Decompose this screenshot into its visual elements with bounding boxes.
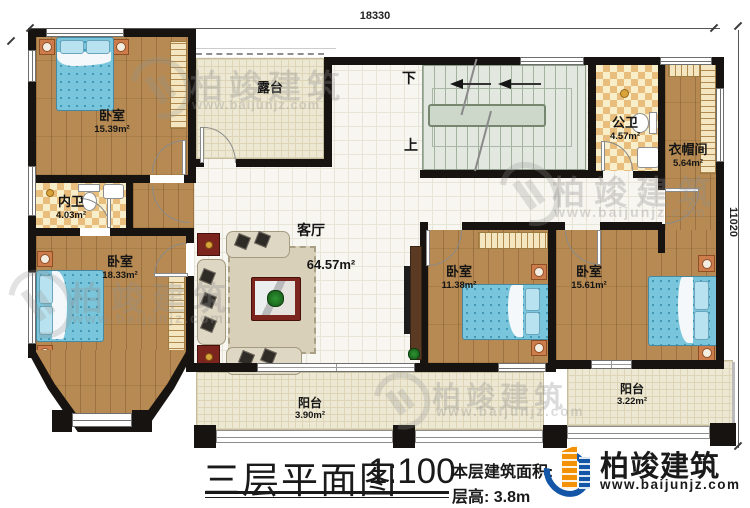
wardrobe (168, 276, 185, 362)
brand-website: www.baijunjz.com (600, 477, 741, 492)
room-name: 卧室 (558, 264, 620, 280)
nightstand (37, 251, 53, 267)
room-label-terrace: 露台 (240, 80, 300, 96)
wall (588, 171, 603, 178)
pillow (694, 311, 709, 340)
window (28, 50, 36, 82)
room-label-cloakroom: 衣帽间 5.64m² (656, 142, 720, 169)
bay-corner-pier (52, 410, 72, 432)
dimension-line-top (30, 28, 720, 29)
door-leaf (182, 140, 186, 175)
room-name: 客厅 (283, 222, 339, 239)
wall (186, 363, 257, 372)
wall (633, 171, 665, 178)
stair-up-label: 上 (404, 135, 418, 155)
logo-building-blue (579, 457, 590, 489)
room-label-living: 客厅 (283, 222, 339, 239)
dimension-tick (734, 22, 742, 30)
wall (548, 230, 556, 363)
end-table (197, 233, 220, 256)
room-label-bedroom-bm: 卧室 11.38m² (428, 264, 490, 291)
wall (28, 228, 80, 236)
room-label-bedroom-tl: 卧室 15.39m² (72, 108, 152, 135)
tv (404, 266, 410, 334)
door-leaf (200, 127, 204, 163)
wall (556, 360, 591, 369)
room-name: 卧室 (72, 108, 152, 124)
nightstand (698, 344, 715, 361)
tv-cabinet (410, 246, 422, 360)
terrace-outer-line (190, 48, 336, 49)
sheet-scale: 1:100 (368, 452, 456, 492)
room-area: 4.03m² (41, 210, 101, 221)
toilet-tank (78, 184, 100, 192)
pillow (39, 306, 53, 335)
stair-down-label: 下 (402, 68, 416, 88)
wardrobe (478, 232, 548, 249)
logo-building-orange (562, 445, 577, 489)
wall (658, 224, 665, 253)
balcony-left-floor (196, 372, 544, 430)
bay-window-glass (72, 413, 132, 427)
window (46, 28, 124, 37)
title-underline-thin (205, 497, 449, 498)
balcony-railing (216, 430, 393, 443)
door-leaf (597, 230, 601, 265)
wall (632, 360, 724, 369)
door-leaf (107, 198, 111, 228)
bay-corner-pier (132, 410, 152, 432)
room-label-bedroom-bl: 卧室 18.33m² (82, 254, 158, 281)
pillow (60, 40, 84, 54)
door-leaf (426, 230, 430, 266)
wall (186, 276, 194, 363)
wall (600, 222, 662, 230)
floor-area-label: 本层建筑面积: (452, 458, 553, 482)
room-name: 衣帽间 (656, 142, 720, 158)
wardrobe (170, 41, 187, 129)
pillow (525, 288, 540, 311)
room-label-balcony-right: 阳台 3.22m² (602, 382, 662, 408)
stair-direction-arrow (498, 79, 511, 89)
room-label-balcony-left: 阳台 3.90m² (280, 396, 340, 422)
window (520, 57, 584, 65)
nightstand (531, 340, 547, 356)
balcony-railing (567, 426, 710, 439)
room-area: 3.90m² (280, 410, 340, 421)
room-area: 3.22m² (602, 396, 662, 407)
nightstand (531, 264, 547, 280)
pillow (39, 275, 53, 304)
window (498, 363, 546, 372)
room-name: 卧室 (428, 264, 490, 280)
floorplan-sheet: 下 上 (0, 0, 750, 508)
pillow (525, 312, 540, 335)
wall (126, 175, 133, 236)
room-area: 18.33m² (82, 270, 158, 281)
door-leaf (665, 188, 699, 192)
sliding-door (591, 360, 632, 369)
pillow (694, 281, 709, 310)
wall (184, 175, 196, 183)
floor-height-label: 层高: 3.8m (452, 483, 530, 507)
plant (267, 290, 284, 307)
wall (324, 57, 332, 167)
pillow (86, 40, 110, 54)
room-area: 64.57m² (296, 257, 366, 273)
dimension-width: 18330 (350, 10, 400, 22)
wall (462, 222, 565, 230)
room-name: 露台 (240, 80, 300, 96)
balcony-railing (415, 430, 543, 443)
room-label-inner-bath: 内卫 4.03m² (41, 194, 101, 221)
fixture-dot (620, 89, 629, 98)
wall (420, 170, 592, 178)
wall (110, 228, 194, 236)
nightstand (113, 39, 129, 55)
window (28, 166, 36, 216)
column (393, 425, 415, 448)
room-name: 阳台 (602, 382, 662, 396)
door-leaf (154, 273, 188, 277)
room-area-living: 64.57m² (296, 257, 366, 273)
room-name: 公卫 (595, 115, 655, 131)
nightstand (39, 39, 55, 55)
stair-arrow-tail (511, 83, 541, 85)
stair-arrow-tail (463, 83, 491, 85)
room-area: 4.57m² (595, 131, 655, 142)
dimension-height: 11020 (727, 197, 739, 247)
terrace-dashed-edge (196, 53, 324, 55)
dimension-tick (7, 37, 15, 45)
window (28, 272, 36, 344)
balcony-edge (732, 362, 735, 426)
wall (188, 28, 196, 183)
wall (236, 159, 332, 167)
room-area: 11.38m² (428, 280, 490, 291)
plant (408, 348, 420, 360)
column (194, 425, 216, 448)
stair-direction-arrow (450, 79, 463, 89)
room-name: 卧室 (82, 254, 158, 270)
room-label-bedroom-br: 卧室 15.61m² (558, 264, 620, 291)
sink (103, 184, 124, 199)
brand-logo-icon (545, 440, 597, 506)
room-name: 内卫 (41, 194, 101, 210)
room-area: 15.61m² (558, 280, 620, 291)
room-area: 5.64m² (656, 158, 720, 169)
door-leaf (601, 141, 605, 171)
room-label-public-bath: 公卫 4.57m² (595, 115, 655, 142)
title-underline-thick (205, 491, 449, 494)
room-name: 阳台 (280, 396, 340, 410)
wall (186, 228, 194, 243)
sliding-door (257, 363, 415, 372)
window (660, 57, 712, 65)
room-area: 15.39m² (72, 124, 152, 135)
nightstand (698, 255, 715, 272)
